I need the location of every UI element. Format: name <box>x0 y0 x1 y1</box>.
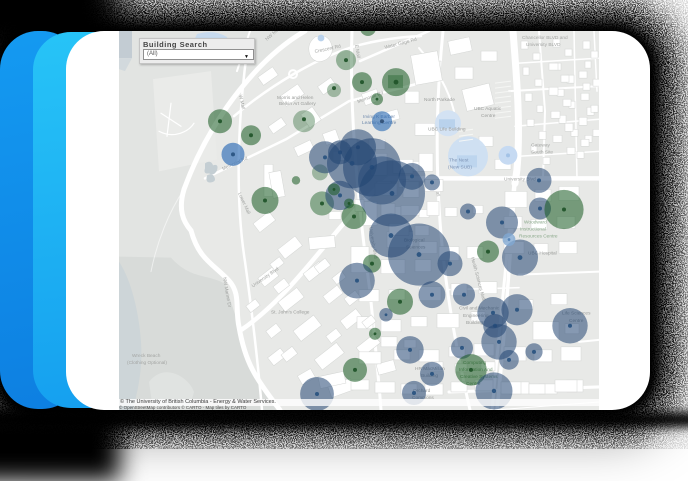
svg-text:Woodward: Woodward <box>524 220 547 226</box>
svg-text:UBC Aquatic: UBC Aquatic <box>474 106 502 112</box>
svg-text:(Clothing Optional): (Clothing Optional) <box>127 360 167 366</box>
svg-text:The Nest: The Nest <box>449 157 469 163</box>
svg-text:Morris and Helen: Morris and Helen <box>277 95 314 101</box>
svg-text:Belkin Art Gallery: Belkin Art Gallery <box>279 101 316 107</box>
svg-text:Centre: Centre <box>481 113 496 119</box>
svg-text:University BLVD: University BLVD <box>526 42 561 48</box>
svg-text:Wreck Beach: Wreck Beach <box>132 353 161 359</box>
svg-text:(New SUB): (New SUB) <box>448 164 472 170</box>
svg-text:UBC Life Building: UBC Life Building <box>428 126 466 132</box>
svg-text:South Site: South Site <box>531 149 553 155</box>
svg-text:Chancellor BLVD and: Chancellor BLVD and <box>522 35 568 41</box>
svg-text:St. John's College: St. John's College <box>271 310 310 316</box>
svg-text:Resources Centre: Resources Centre <box>519 234 558 240</box>
svg-text:North Parkade: North Parkade <box>424 97 455 103</box>
svg-text:Instructional: Instructional <box>520 227 546 233</box>
svg-text:Gateway: Gateway <box>531 142 551 148</box>
